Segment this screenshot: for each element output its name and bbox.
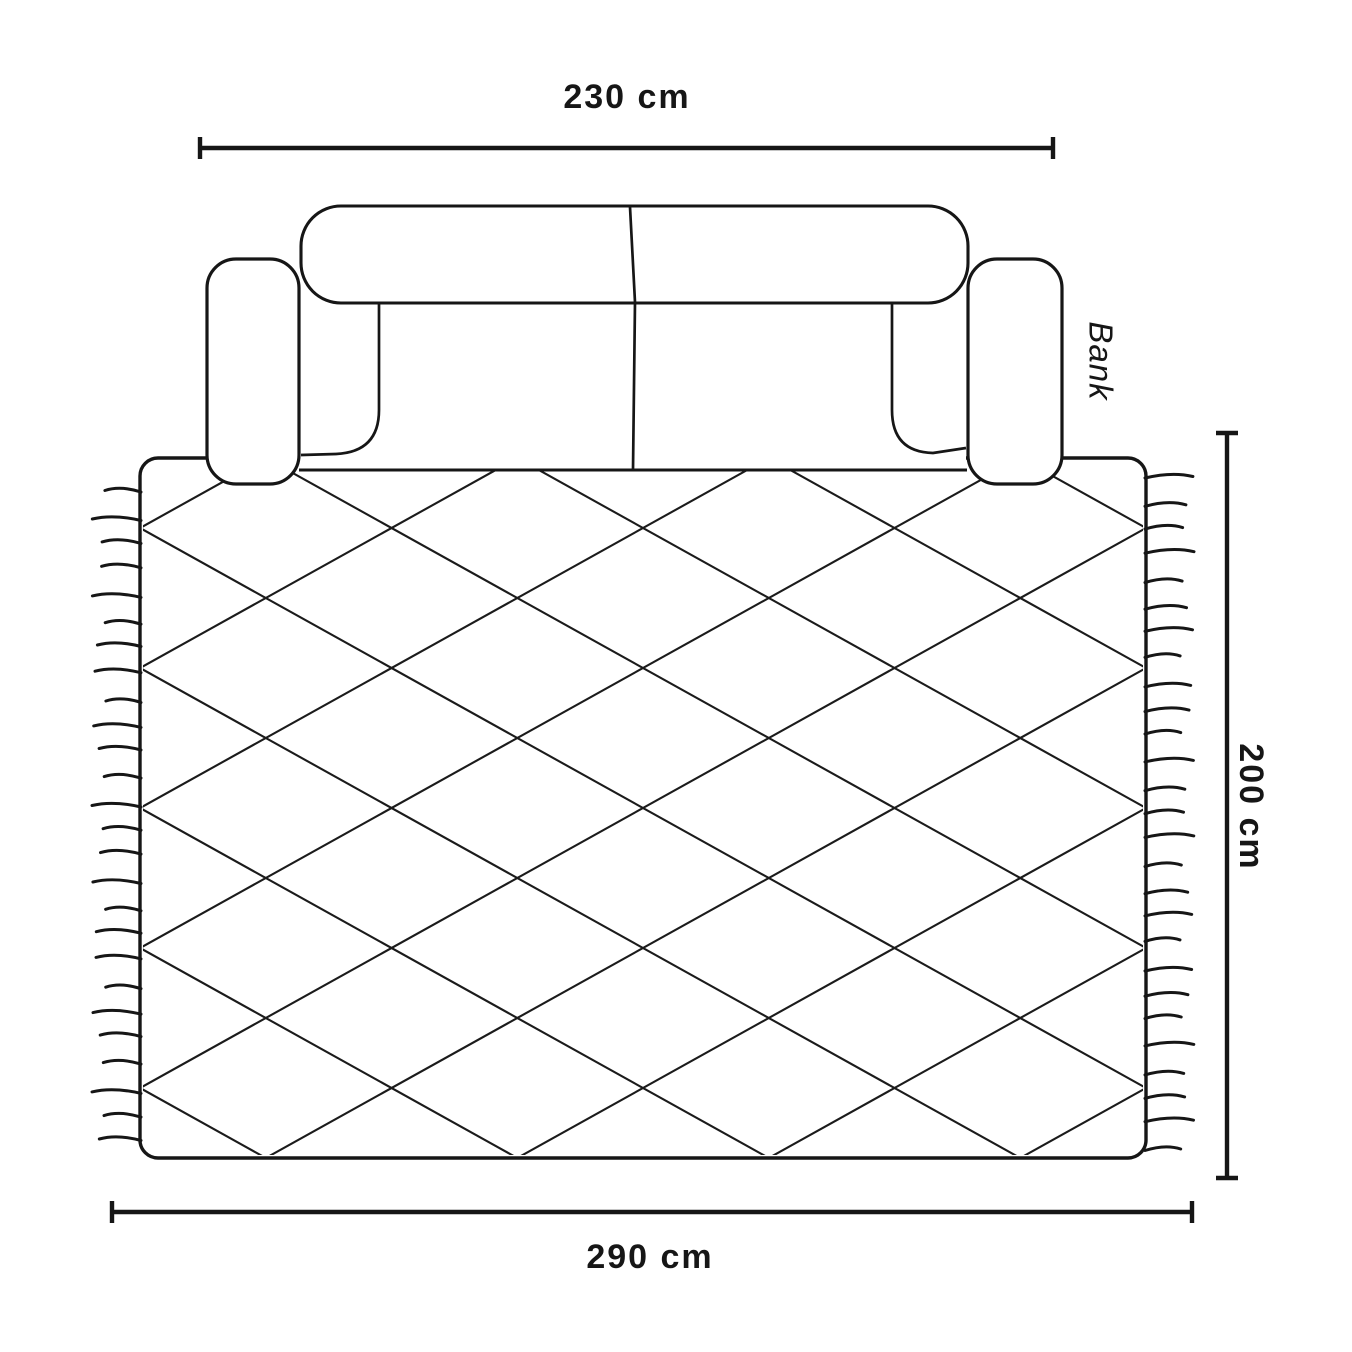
fringe-stroke (1145, 654, 1180, 658)
dimension-rug-width: 290 cm (112, 1201, 1192, 1276)
fringe-stroke (102, 564, 141, 568)
fringe-stroke (93, 880, 141, 884)
rug (92, 0, 1194, 1352)
fringe-stroke (1145, 1095, 1185, 1099)
fringe-stroke (1145, 1015, 1181, 1019)
fringe-stroke (96, 955, 141, 959)
fringe-stroke (92, 803, 141, 807)
fringe-stroke (1145, 525, 1183, 529)
fringe-stroke (92, 517, 141, 521)
fringe-stroke (1145, 606, 1187, 610)
sofa-armrest-right (968, 259, 1062, 484)
fringe-stroke (95, 669, 141, 673)
fringe-stroke (102, 540, 141, 544)
fringe-stroke (100, 1033, 141, 1037)
fringe-stroke (1145, 503, 1186, 507)
fringe-stroke (1145, 474, 1193, 478)
rug-height-label: 200 cm (1232, 743, 1270, 870)
fringe-stroke (1145, 1071, 1184, 1075)
fringe-stroke (1145, 708, 1189, 712)
fringe-stroke (1145, 810, 1184, 814)
fringe-stroke (1145, 758, 1193, 762)
dimension-sofa-width: 230 cm (200, 78, 1053, 159)
rug-width-label: 290 cm (586, 1238, 713, 1276)
sofa-width-label: 230 cm (563, 78, 690, 116)
fringe-stroke (105, 621, 141, 625)
fringe-stroke (103, 827, 141, 831)
fringe-stroke (1145, 787, 1185, 791)
fringe-stroke (99, 746, 141, 750)
sofa (207, 206, 1062, 484)
fringe-stroke (104, 1113, 141, 1117)
fringe-stroke (106, 985, 141, 989)
fringe-stroke (105, 488, 141, 492)
fringe-stroke (1145, 550, 1194, 554)
sofa-name-label: Bank (1082, 321, 1119, 401)
fringe-stroke (93, 1010, 141, 1014)
fringe-stroke (1145, 912, 1192, 916)
fringe-stroke (94, 724, 141, 728)
sofa-armrest-left (207, 259, 299, 484)
fringe-stroke (1145, 967, 1192, 971)
fringe-stroke (1145, 579, 1182, 583)
lattice-line (100, 1346, 1190, 1352)
dimension-rug-height: 200 cm (1216, 433, 1270, 1178)
fringe-stroke (92, 1090, 141, 1094)
fringe-stroke (104, 774, 141, 778)
fringe-stroke (103, 1060, 141, 1064)
fringe-stroke (1145, 890, 1188, 894)
fringe-stroke (1145, 683, 1191, 687)
fringe-stroke (106, 907, 141, 911)
lattice-line (100, 1206, 1190, 1352)
fringe-stroke (1145, 993, 1188, 997)
fringe-stroke (92, 594, 141, 598)
rug-fringe-left (92, 488, 141, 1140)
fringe-stroke (1145, 628, 1193, 632)
fringe-stroke (1145, 730, 1181, 734)
dimension-diagram: 230 cm 290 cm 200 cm Bank (0, 0, 1352, 1352)
fringe-stroke (1145, 1042, 1194, 1046)
fringe-stroke (1145, 863, 1181, 867)
fringe-stroke (1145, 1147, 1181, 1151)
fringe-stroke (1145, 938, 1180, 942)
fringe-stroke (106, 699, 141, 703)
fringe-stroke (1145, 1118, 1194, 1122)
fringe-stroke (101, 850, 142, 854)
fringe-stroke (96, 930, 141, 934)
fringe-stroke (99, 1137, 141, 1141)
fringe-stroke (1145, 834, 1194, 838)
rug-fringe-right (1145, 474, 1194, 1150)
fringe-stroke (97, 643, 141, 647)
